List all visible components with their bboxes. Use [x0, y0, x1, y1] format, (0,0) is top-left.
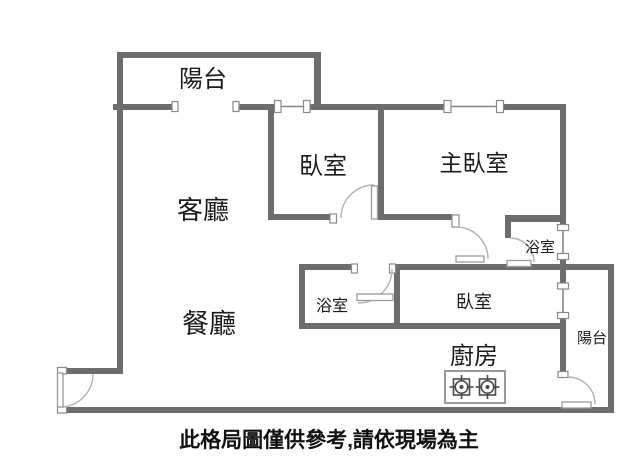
room-label-master-bedroom: 主臥室 [440, 150, 509, 176]
window-tick [304, 101, 311, 113]
disclaimer-text: 此格局圖僅供參考,請依現場為主 [179, 428, 479, 452]
door-arc-entry [60, 374, 93, 407]
door-jamb-bathroom-lower-left [352, 264, 358, 273]
door-leaf-bathroom-corridor [507, 261, 531, 267]
room-label-bathroom-lower: 浴室 [316, 297, 348, 315]
door-leaf-bathroom-lower [357, 294, 393, 301]
room-label-balcony-top: 陽台 [179, 66, 227, 93]
balcony-slider-jamb-left [172, 102, 178, 112]
door-leaf-master [456, 256, 484, 262]
stove-burner-right [476, 375, 500, 399]
room-label-living-room: 客廳 [177, 195, 229, 225]
door-jamb-master [452, 215, 459, 227]
floor-plan-page: 陽台 客廳 餐廳 臥室 主臥室 浴室 浴室 臥室 廚房 陽台 此格局圖僅供參考,… [0, 0, 640, 461]
window-tick [558, 254, 569, 260]
walls [58, 52, 614, 413]
window-tick [558, 283, 569, 289]
room-label-bathroom-corridor: 浴室 [525, 239, 555, 256]
room-label-dining-room: 餐廳 [182, 309, 236, 339]
floor-plan-canvas: 陽台 客廳 餐廳 臥室 主臥室 浴室 浴室 臥室 廚房 陽台 此格局圖僅供參考,… [0, 0, 640, 461]
stove-icon [445, 371, 505, 403]
room-label-balcony-right: 陽台 [577, 330, 607, 347]
door-leaf-balcony-right [562, 402, 591, 408]
window-tick [558, 225, 569, 231]
door-arc-master [456, 227, 488, 259]
balcony-slider-jamb-right [233, 102, 239, 112]
room-label-bedroom-lower: 臥室 [456, 292, 492, 312]
door-leaf-entry [58, 373, 64, 407]
window-tick [275, 101, 282, 113]
window-tick [558, 313, 569, 319]
stove-burner-left [450, 375, 474, 399]
room-label-bedroom-small: 臥室 [299, 153, 347, 180]
window-tick [444, 101, 451, 113]
door-arc-bedroom-small [341, 185, 374, 218]
door-leaf-bedroom-small [372, 186, 378, 219]
window-tick [497, 101, 504, 113]
door-arc-balcony-right [568, 377, 595, 404]
room-label-kitchen: 廚房 [450, 343, 498, 370]
door-jamb-kitchen-balcony [558, 372, 568, 378]
door-jamb-bedroom-small [330, 214, 337, 223]
